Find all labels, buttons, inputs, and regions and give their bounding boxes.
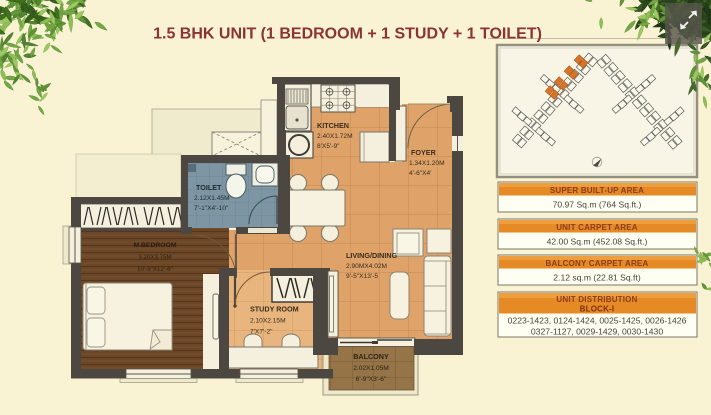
svg-text:8'X5'-9": 8'X5'-9"	[317, 143, 340, 150]
svg-text:70.97 Sq.m (764 Sq.ft.): 70.97 Sq.m (764 Sq.ft.)	[553, 200, 642, 210]
svg-text:M.BEDROOM: M.BEDROOM	[133, 242, 176, 249]
svg-text:FOYER: FOYER	[411, 148, 437, 157]
svg-text:2.10X2.15M: 2.10X2.15M	[250, 318, 286, 325]
svg-text:LIVING/DINING: LIVING/DINING	[346, 251, 398, 260]
svg-text:2.40X1.72M: 2.40X1.72M	[317, 133, 353, 140]
svg-text:3.20X3.75M: 3.20X3.75M	[138, 254, 171, 261]
svg-text:9'-5"X13'-5: 9'-5"X13'-5	[346, 273, 378, 280]
svg-text:UNIT DISTRIBUTION: UNIT DISTRIBUTION	[556, 295, 637, 304]
svg-text:KITCHEN: KITCHEN	[317, 121, 349, 130]
svg-text:BALCONY: BALCONY	[353, 352, 389, 361]
svg-text:1.5 BHK UNIT (1 BEDROOM + 1 ST: 1.5 BHK UNIT (1 BEDROOM + 1 STUDY + 1 TO…	[153, 26, 542, 43]
svg-text:TOILET: TOILET	[196, 183, 222, 192]
svg-text:2.02X1.05M: 2.02X1.05M	[353, 365, 389, 372]
svg-text:BLOCK-I: BLOCK-I	[580, 305, 615, 314]
svg-text:6'-9"X3'-6": 6'-9"X3'-6"	[356, 376, 387, 383]
svg-text:10'-8"X12'-6": 10'-8"X12'-6"	[137, 266, 173, 273]
svg-text:7'X7'-2": 7'X7'-2"	[250, 329, 273, 336]
svg-text:2.12 sq.m (22.81 Sq.ft): 2.12 sq.m (22.81 Sq.ft)	[553, 273, 641, 283]
svg-text:STUDY ROOM: STUDY ROOM	[250, 305, 299, 314]
svg-text:2.90MX4.02M: 2.90MX4.02M	[346, 263, 387, 270]
svg-text:42.00 Sq.m (452.08 Sq.ft.): 42.00 Sq.m (452.08 Sq.ft.)	[547, 237, 648, 247]
svg-text:4'-6"X4': 4'-6"X4'	[409, 170, 431, 177]
svg-text:1.34X1.20M: 1.34X1.20M	[409, 160, 445, 167]
svg-text:0223-1423, 0124-1424, 0025-142: 0223-1423, 0124-1424, 0025-1425, 0026-14…	[508, 316, 687, 326]
svg-text:SUPER BUILT-UP AREA: SUPER BUILT-UP AREA	[550, 186, 644, 195]
svg-text:BALCONY CARPET AREA: BALCONY CARPET AREA	[546, 259, 649, 268]
svg-text:UNIT CARPET AREA: UNIT CARPET AREA	[556, 223, 638, 232]
svg-text:7'-1"X4'-10": 7'-1"X4'-10"	[194, 205, 229, 212]
svg-text:0327-1127, 0029-1429, 0030-143: 0327-1127, 0029-1429, 0030-1430	[531, 327, 663, 337]
svg-text:2.12X1.45M: 2.12X1.45M	[194, 195, 230, 202]
